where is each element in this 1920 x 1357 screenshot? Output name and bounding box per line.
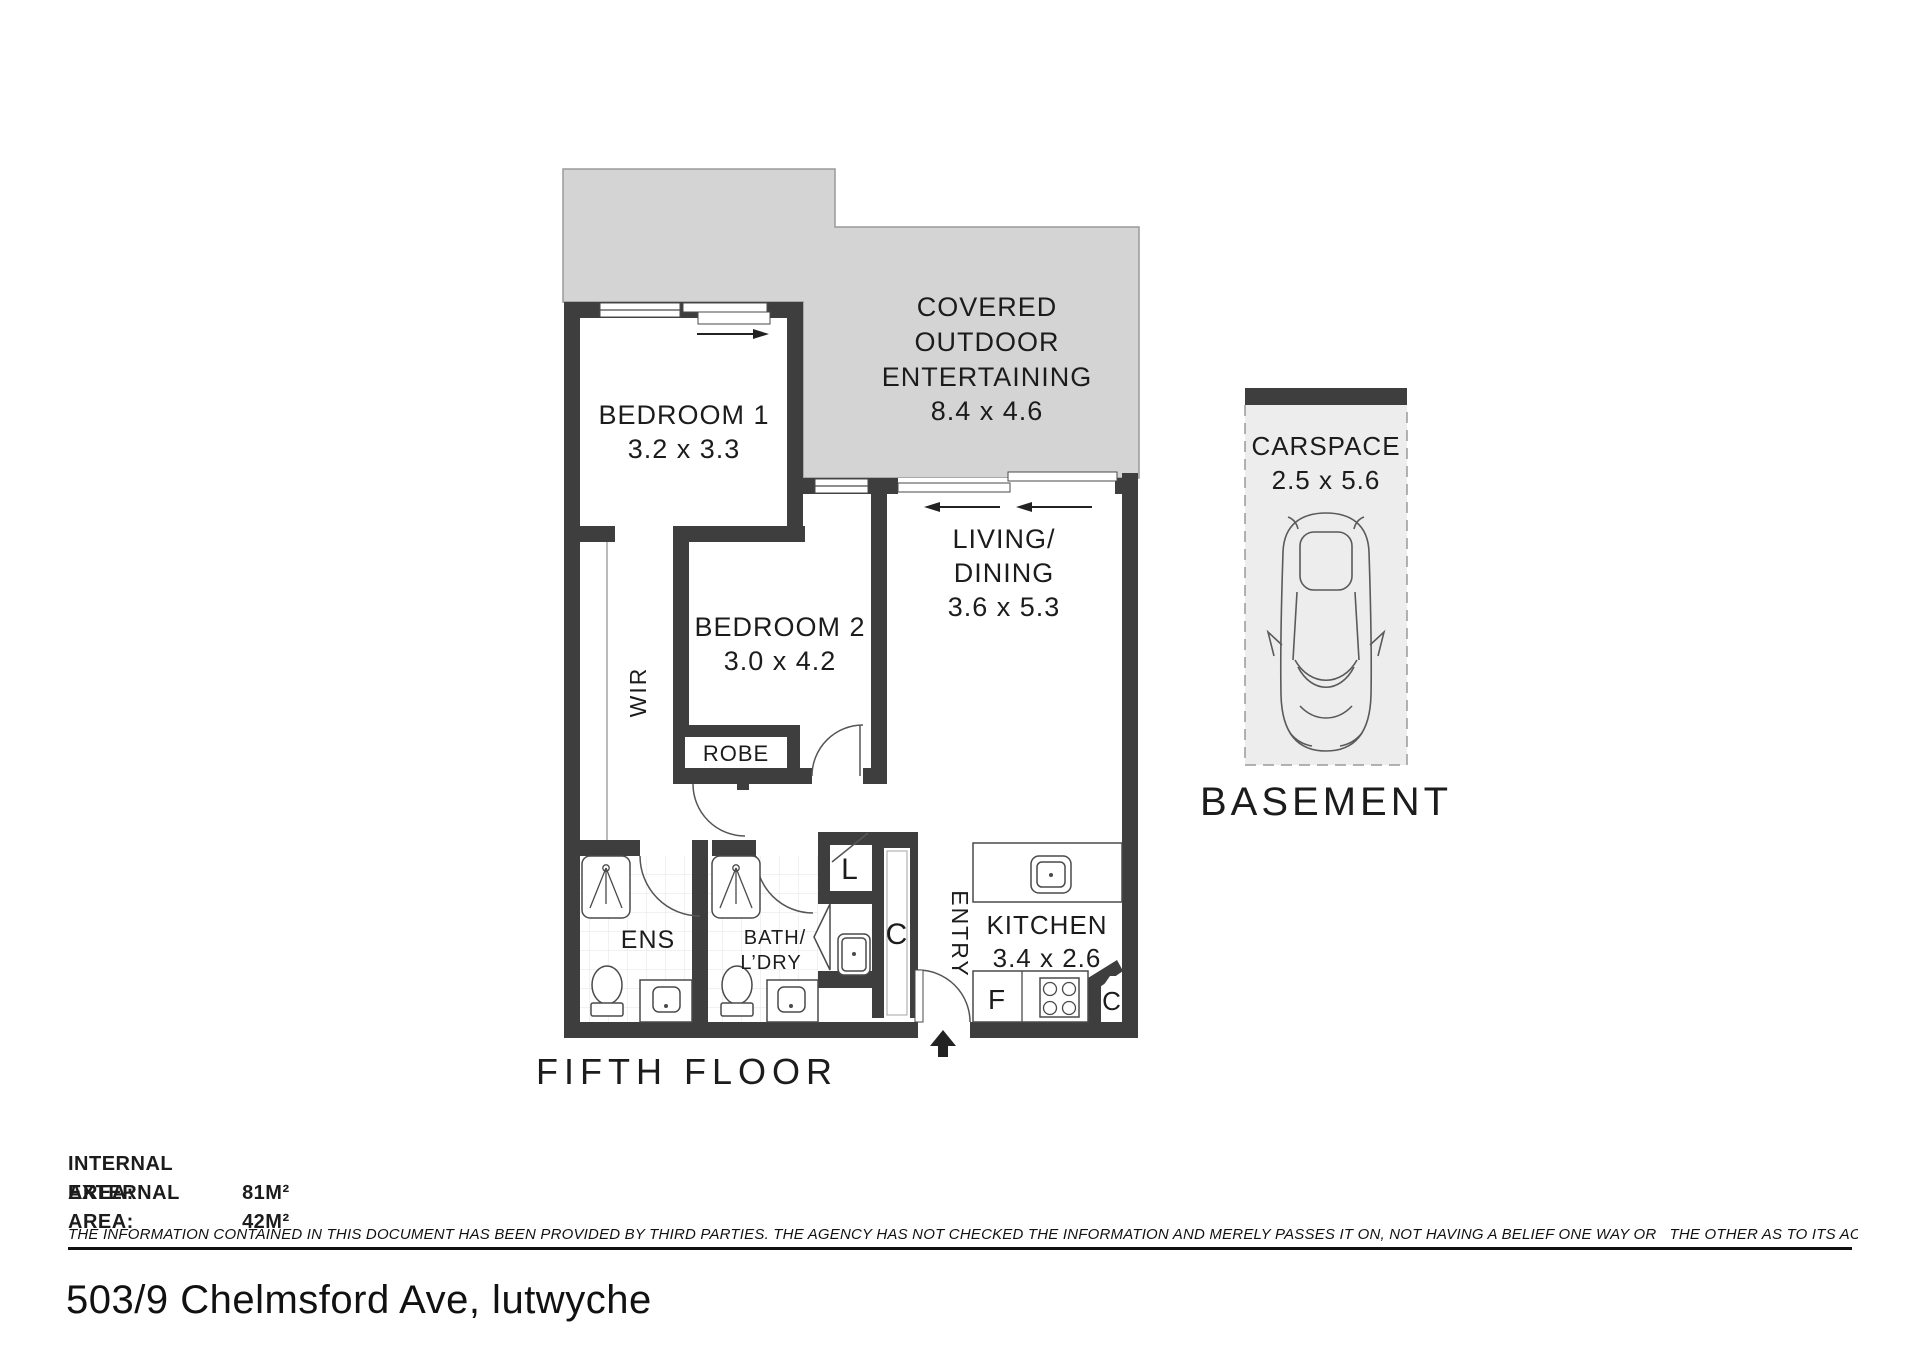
divider-rule (68, 1247, 1852, 1250)
vanity-ens-icon (640, 980, 692, 1022)
outdoor-label-line3: ENTERTAINING (882, 362, 1093, 392)
kitchen-island-sink-icon (973, 843, 1122, 902)
carspace: CARSPACE 2.5 x 5.6 BASEMENT (1200, 388, 1452, 824)
bedroom1-label: BEDROOM 1 (598, 400, 769, 430)
carspace-label: CARSPACE (1251, 431, 1400, 461)
ens-label: ENS (621, 926, 675, 954)
bedroom2-dims: 3.0 x 4.2 (724, 646, 837, 676)
kitchen-label: KITCHEN (986, 910, 1107, 940)
outdoor-label-line1: COVERED (917, 292, 1058, 322)
laundry-tub-icon (838, 934, 870, 975)
external-area-row: EXTERNAL AREA: 42M² (68, 1179, 290, 1208)
cooktop-icon (1040, 978, 1079, 1017)
disclaimer-text: THE INFORMATION CONTAINED IN THIS DOCUME… (68, 1226, 1858, 1243)
area-summary: INTERNAL AREA: 81M² EXTERNAL AREA: 42M² (68, 1150, 290, 1208)
covered-outdoor-area: COVERED OUTDOOR ENTERTAINING 8.4 x 4.6 (563, 169, 1139, 478)
kitchen-dims: 3.4 x 2.6 (993, 943, 1102, 973)
carspace-dims: 2.5 x 5.6 (1272, 465, 1381, 495)
kitchen-cupboard-label: C (1102, 986, 1122, 1016)
living-label-line2: DINING (954, 558, 1055, 588)
fridge-label: F (988, 984, 1006, 1015)
internal-area-row: INTERNAL AREA: 81M² (68, 1150, 290, 1179)
linen-label: L (841, 853, 859, 886)
entry-label: ENTRY (947, 890, 973, 978)
floor-label: FIFTH FLOOR (536, 1051, 838, 1092)
basement-label: BASEMENT (1200, 780, 1452, 824)
bedroom2-door-arc (812, 725, 863, 776)
shower-ens-icon (582, 856, 630, 918)
bedroom1-dims: 3.2 x 3.3 (628, 434, 741, 464)
wir-label: WIR (625, 667, 651, 718)
bedroom2-label: BEDROOM 2 (694, 612, 865, 642)
hall-door-arc (693, 784, 745, 836)
toilet-ens-icon (591, 966, 623, 1016)
entry-arrow-icon (930, 1030, 956, 1057)
bath-label-line1: BATH/ (744, 927, 806, 949)
living-dims: 3.6 x 5.3 (948, 592, 1061, 622)
outdoor-label-line2: OUTDOOR (915, 327, 1060, 357)
living-label-line1: LIVING/ (952, 524, 1055, 554)
floorplan-page: COVERED OUTDOOR ENTERTAINING 8.4 x 4.6 (0, 0, 1920, 1357)
shower-bath-icon (712, 856, 760, 918)
hall-cupboard-label: C (886, 918, 909, 951)
vanity-bath-icon (767, 980, 818, 1022)
property-address: 503/9 Chelmsford Ave, lutwyche (66, 1278, 652, 1323)
bath-label-line2: L’DRY (740, 952, 801, 974)
outdoor-dims: 8.4 x 4.6 (931, 396, 1044, 426)
robe-label: ROBE (703, 741, 769, 766)
entry-door-arc (918, 970, 970, 1022)
entry-door-leaf (915, 970, 923, 1022)
